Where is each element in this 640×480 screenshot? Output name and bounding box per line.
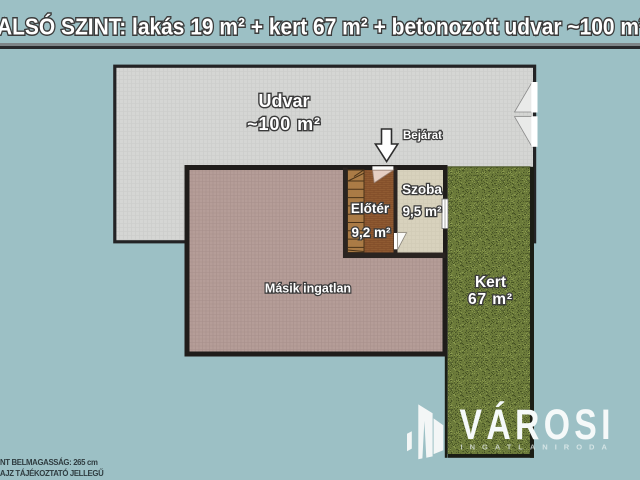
svg-text:ALSÓ SZINT BELMAGASSÁG: 265 cm: ALSÓ SZINT BELMAGASSÁG: 265 cm	[0, 458, 98, 467]
svg-text:Kert: Kert	[475, 274, 506, 291]
svg-text:~100 m²: ~100 m²	[247, 114, 321, 134]
svg-text:ALSÓ SZINT: lakás 19 m² + kert: ALSÓ SZINT: lakás 19 m² + kert 67 m² + b…	[0, 13, 640, 39]
svg-text:Másik ingatlan: Másik ingatlan	[265, 282, 351, 296]
svg-text:9,2 m²: 9,2 m²	[351, 225, 391, 240]
svg-text:Szoba: Szoba	[402, 182, 442, 197]
svg-text:Bejárat: Bejárat	[403, 130, 442, 142]
svg-text:67 m²: 67 m²	[468, 291, 513, 308]
svg-text:9,5 m²: 9,5 m²	[402, 204, 442, 219]
svg-text:INGATLANIRODA: INGATLANIRODA	[461, 442, 614, 451]
svg-text:Előtér: Előtér	[351, 201, 390, 216]
svg-text:Udvar: Udvar	[258, 91, 309, 111]
svg-text:AZ ALAPRAJZ TÁJÉKOZTATÓ JELLEG: AZ ALAPRAJZ TÁJÉKOZTATÓ JELLEGŰ	[0, 469, 104, 478]
